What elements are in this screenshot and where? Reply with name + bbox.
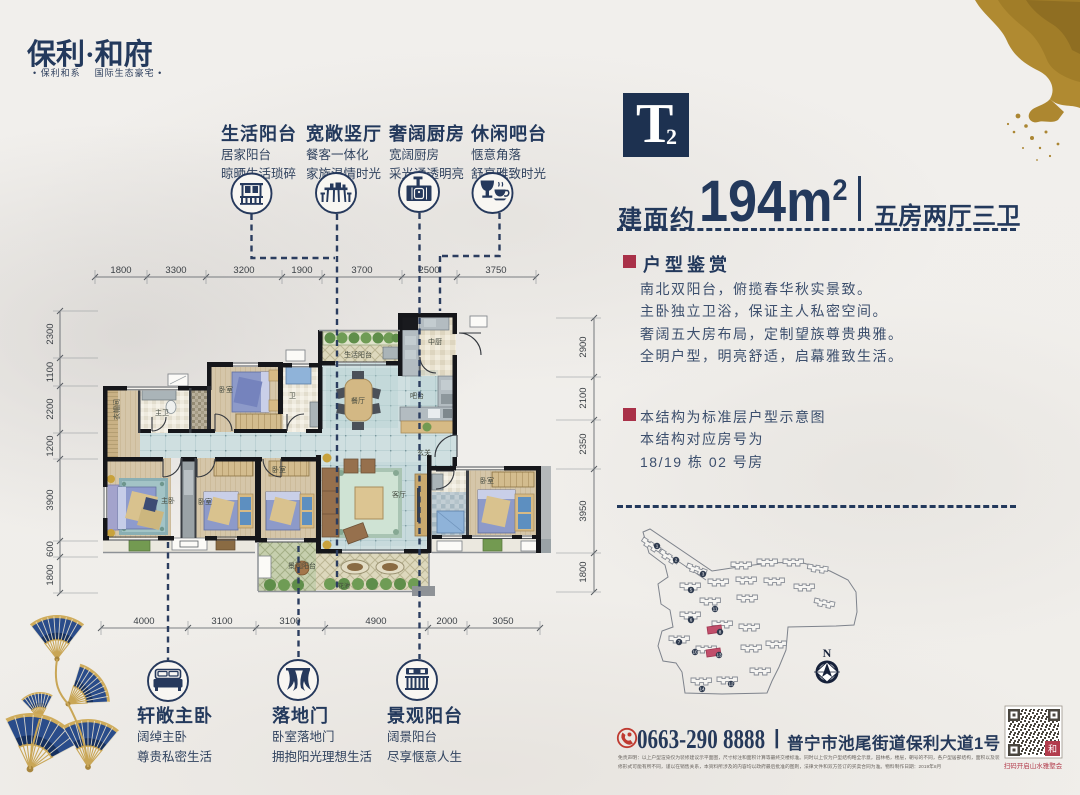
svg-text:扫码开启山水雅墅会: 扫码开启山水雅墅会 [1004,761,1063,770]
svg-text:卧室: 卧室 [198,497,212,506]
svg-text:4000: 4000 [133,616,154,627]
svg-text:2200: 2200 [45,398,56,419]
svg-text:3900: 3900 [45,489,56,510]
svg-text:1800: 1800 [45,564,56,585]
svg-text:1100: 1100 [45,362,56,382]
svg-text:2100: 2100 [578,387,589,408]
svg-text:2300: 2300 [45,323,56,344]
svg-text:N: N [823,646,832,660]
svg-text:5: 5 [690,588,693,593]
svg-text:卧室: 卧室 [219,385,233,394]
svg-text:4900: 4900 [365,616,386,627]
svg-text:2000: 2000 [436,616,457,627]
svg-text:12: 12 [728,682,734,687]
svg-text:3750: 3750 [485,265,506,276]
svg-text:6: 6 [690,618,693,623]
svg-text:3700: 3700 [351,265,372,276]
svg-text:3950: 3950 [578,500,589,521]
svg-text:卫: 卫 [289,392,296,400]
svg-text:2350: 2350 [578,433,589,454]
svg-text:中厨: 中厨 [428,337,442,346]
svg-text:14: 14 [699,687,705,692]
svg-text:3300: 3300 [165,265,186,276]
svg-text:3050: 3050 [492,616,513,627]
svg-text:2900: 2900 [578,336,589,357]
svg-text:卧室: 卧室 [480,476,494,485]
svg-text:客厅: 客厅 [392,490,406,499]
svg-text:1200: 1200 [45,435,56,456]
svg-text:主卫: 主卫 [155,408,169,417]
svg-text:7: 7 [678,640,681,645]
svg-text:600: 600 [45,541,56,557]
svg-text:1900: 1900 [291,265,312,276]
svg-text:主卧: 主卧 [161,496,175,505]
svg-text:3: 3 [702,572,705,577]
svg-text:1800: 1800 [110,265,131,276]
svg-text:1: 1 [656,544,659,549]
svg-text:和: 和 [1048,744,1057,754]
svg-text:1800: 1800 [578,561,589,582]
svg-text:3100: 3100 [211,616,232,627]
svg-text:8: 8 [719,630,722,635]
svg-text:景观阳台: 景观阳台 [288,561,316,570]
svg-text:13: 13 [716,653,722,658]
svg-text:吧台: 吧台 [410,391,424,400]
svg-text:卧室: 卧室 [272,465,286,474]
svg-text:3200: 3200 [233,265,254,276]
svg-text:衣帽间: 衣帽间 [112,399,121,420]
svg-text:2: 2 [675,558,678,563]
svg-text:2500: 2500 [418,265,439,276]
svg-text:生活阳台: 生活阳台 [344,350,372,359]
svg-text:10: 10 [692,650,698,655]
svg-text:花池: 花池 [338,582,350,590]
svg-text:11: 11 [713,607,718,612]
svg-text:餐厅: 餐厅 [351,396,365,405]
